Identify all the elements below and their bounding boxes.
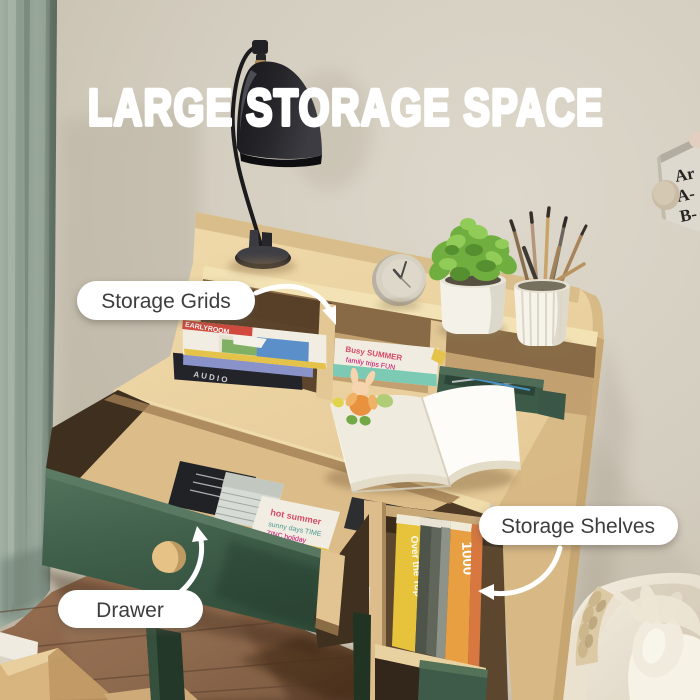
svg-text:LARGE STORAGE SPACE: LARGE STORAGE SPACE <box>88 79 604 136</box>
svg-text:Ar: Ar <box>673 163 697 186</box>
svg-text:Storage Shelves: Storage Shelves <box>501 515 655 538</box>
svg-text:Storage Grids: Storage Grids <box>101 290 231 313</box>
svg-text:Drawer: Drawer <box>96 599 164 622</box>
